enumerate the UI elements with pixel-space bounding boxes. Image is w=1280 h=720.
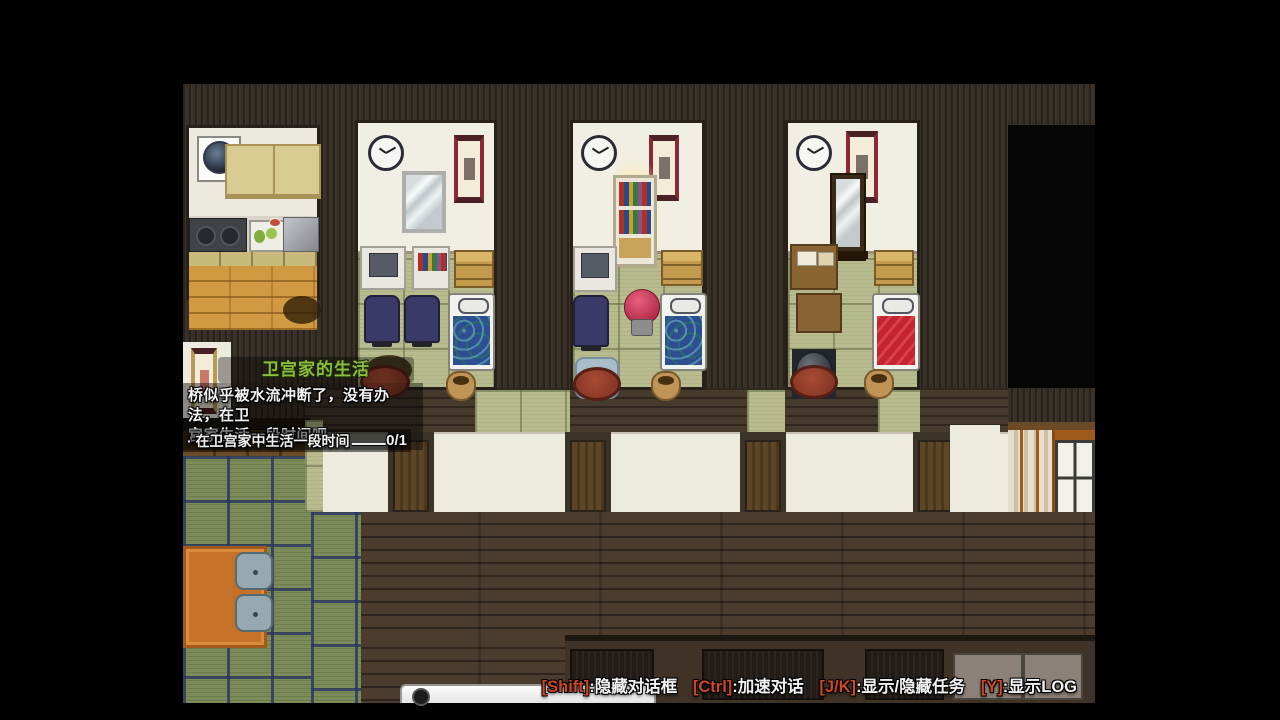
hallway-gap <box>747 390 785 432</box>
wall-clock <box>368 135 404 171</box>
quest-description-line1: 桥似乎被水流冲断了，没有办法，在卫 <box>188 386 418 426</box>
washitsu-tatami <box>311 512 361 703</box>
glass-window <box>1055 440 1095 516</box>
wall-clock <box>796 135 832 171</box>
bed-red <box>872 293 920 371</box>
sink <box>283 217 319 252</box>
hotkey-y: [Y]:显示LOG <box>981 678 1077 696</box>
quest-title: 卫宫家的生活 <box>262 360 370 379</box>
office-chair <box>573 295 609 347</box>
kitchen-wood-floor <box>189 266 317 330</box>
leaning-mirror <box>402 171 446 233</box>
right-wall-piece <box>950 425 1000 515</box>
hotkey-jk-key: [J/K] <box>819 678 856 696</box>
shoji-window <box>1008 430 1055 516</box>
dark-opening <box>1008 125 1095 388</box>
bed-blue <box>448 293 495 371</box>
book-desk <box>790 244 838 290</box>
hallway-gap <box>475 390 570 432</box>
hotkey-jk: [J/K]:显示/隐藏任务 <box>819 678 965 696</box>
bedroom-1 <box>355 120 497 390</box>
hanging-scroll <box>454 135 484 203</box>
kitchen-counter <box>189 216 317 252</box>
door-4 <box>918 440 954 512</box>
stove <box>189 218 247 252</box>
hotkey-shift-key: [Shift] <box>542 678 590 696</box>
office-chair <box>364 295 400 343</box>
office-chair <box>404 295 440 343</box>
game-screen: 卫宫家的生活 桥似乎被水流冲断了，没有办法，在卫 宫家生活一段时间吧。 · 在卫… <box>0 0 1280 720</box>
laptop-desk <box>573 246 617 292</box>
floor-cushion <box>235 552 273 590</box>
floor-cushion <box>235 594 273 632</box>
hotkey-ctrl-label: :加速对话 <box>732 678 804 696</box>
plant-pot <box>651 371 681 401</box>
bedroom-3 <box>785 120 920 390</box>
dresser <box>874 250 914 286</box>
hotkey-y-label: :显示LOG <box>1003 678 1077 696</box>
hotkey-ctrl: [Ctrl]:加速对话 <box>693 678 804 696</box>
tall-bookshelf <box>613 175 657 267</box>
dresser <box>661 250 703 286</box>
upper-cabinets <box>225 144 321 199</box>
plant-pot <box>446 371 476 401</box>
hotkey-bar: [Shift]:隐藏对话框 [Ctrl]:加速对话 [J/K]:显示/隐藏任务 … <box>542 673 1077 697</box>
bedroom-2 <box>570 120 705 390</box>
laptop-desk <box>360 246 406 290</box>
task-leader-line <box>352 443 386 445</box>
door-2 <box>570 440 606 512</box>
hotkey-y-key: [Y] <box>981 678 1003 696</box>
task-progress: 0/1 <box>386 432 407 449</box>
round-table <box>790 365 838 399</box>
character-sprite[interactable] <box>623 289 659 339</box>
hotkey-shift-label: :隐藏对话框 <box>589 678 677 696</box>
bed-blue <box>660 293 707 371</box>
speaker-icon <box>412 688 430 706</box>
hotkey-shift: [Shift]:隐藏对话框 <box>542 678 678 696</box>
veranda-deck <box>360 512 1095 636</box>
bookshelf <box>412 246 450 290</box>
plant-pot <box>864 369 894 399</box>
cutting-board <box>249 220 285 252</box>
door-3 <box>745 440 781 512</box>
hotkey-jk-label: :显示/隐藏任务 <box>856 678 965 696</box>
task-label: · 在卫宫家中生活一段时间 <box>187 431 350 451</box>
quest-task-row: · 在卫宫家中生活一段时间 0/1 <box>183 429 411 452</box>
window-strip <box>1008 422 1095 516</box>
dresser <box>454 250 494 288</box>
side-table <box>796 293 842 333</box>
hotkey-ctrl-key: [Ctrl] <box>693 678 732 696</box>
round-table <box>573 367 621 401</box>
quest-title-band: 卫宫家的生活 <box>218 357 414 383</box>
